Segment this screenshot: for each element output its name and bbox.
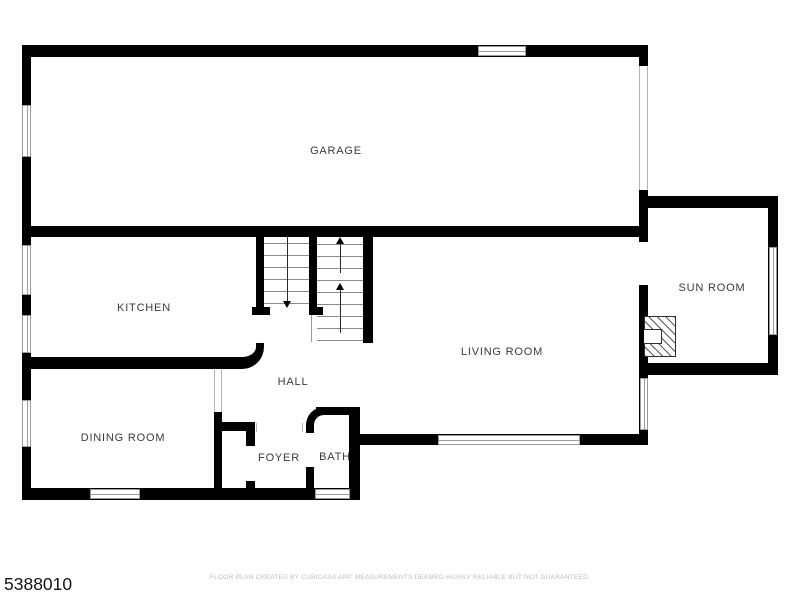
window-livingroom-right [640,378,648,430]
wall-sunroom-top [639,196,778,208]
window-livingroom-bottom [438,435,580,445]
fireplace-firebox [644,329,662,344]
wall-sunroom-left-upper [639,208,648,242]
wall-kitchen-dining-divider [31,357,242,369]
wall-stair-middle [309,226,317,315]
wall-sunroom-bottom [639,363,778,375]
dining-hall-opening [214,369,222,412]
wall-closet-right-lower [246,481,255,498]
wall-closet-right-upper [246,422,255,446]
floor-plan: GARAGE KITCHEN DINING ROOM HALL FOYER BA… [0,0,800,600]
stair-down-arrow-line [287,237,288,301]
room-label-foyer: FOYER [258,452,300,464]
stair-up-arrow-line-2 [340,289,341,333]
wall-stair-right [363,226,373,343]
window-dining-bottom [90,489,140,499]
room-label-bath: BATH [319,451,351,463]
window-kitchen-left-1 [22,245,31,295]
room-label-garage: GARAGE [310,145,362,157]
window-bath-bottom [315,489,350,499]
garage-door-opening [639,66,648,190]
wall-bath-left-lower [306,467,314,498]
stair-arrow-down-icon [283,301,291,308]
wall-kitchen-corner-rounded [238,343,264,369]
wall-stair-left [256,226,264,315]
wall-garage-right-upper [639,45,648,66]
window-sunroom-right [769,247,777,335]
window-garage-top [478,46,526,56]
wall-stair-left-stub [252,307,270,315]
hall-foyer-opening-left-tick [256,423,257,432]
room-label-dining-room: DINING ROOM [81,432,166,444]
window-garage-left [22,105,31,157]
wall-dining-right [214,412,222,498]
stair-landing-outline [311,315,312,342]
wall-exterior-top [22,45,648,57]
window-kitchen-left-2 [22,315,31,353]
wall-bath-corner-rounded [306,407,328,433]
room-label-hall: HALL [278,376,309,388]
room-label-sun-room: SUN ROOM [679,282,746,294]
hall-foyer-opening-right-tick [302,423,303,432]
wall-garage-divider [22,226,648,237]
stair-up-arrow-line-1 [340,243,341,273]
room-label-kitchen: KITCHEN [117,302,171,314]
disclaimer-text: FLOOR PLAN CREATED BY CUBICASA APP. MEAS… [0,574,800,581]
window-dining-left [22,400,31,447]
room-label-living-room: LIVING ROOM [461,346,543,358]
